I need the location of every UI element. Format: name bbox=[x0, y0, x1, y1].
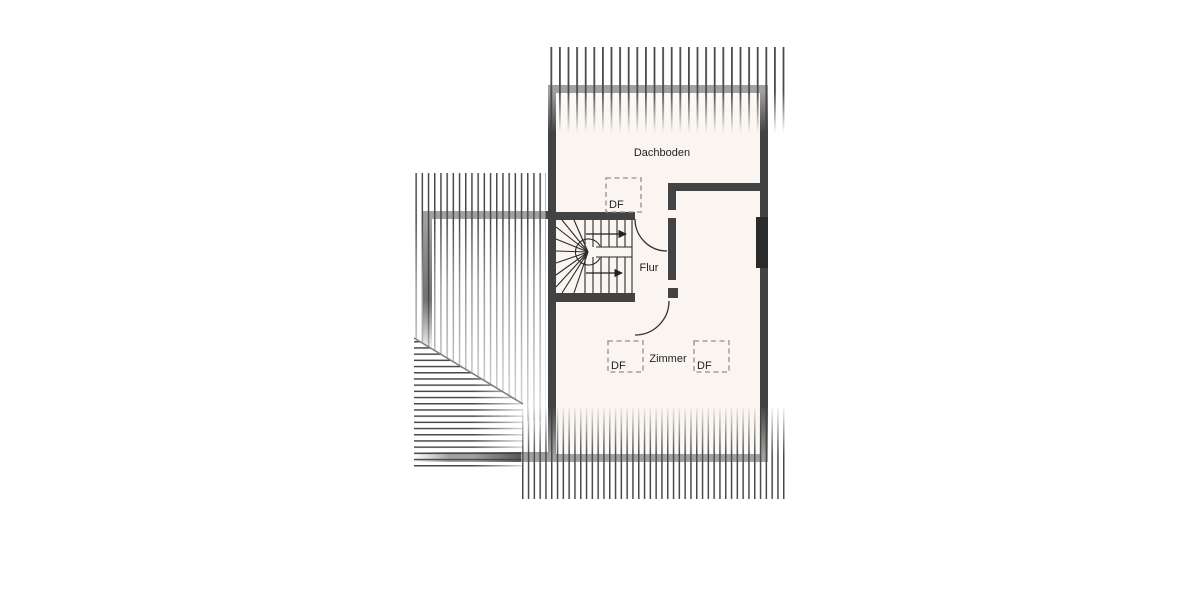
roof-window-label: DF bbox=[697, 360, 712, 372]
stair-bottom-wall bbox=[552, 293, 635, 302]
roof-window-label: DF bbox=[611, 360, 626, 372]
stair-top-wall bbox=[552, 212, 635, 220]
chimney-block bbox=[756, 217, 768, 268]
room-label-hallway: Flur bbox=[640, 262, 659, 274]
hallway-wall-stub bbox=[668, 288, 678, 298]
room-partition-wall bbox=[672, 183, 768, 191]
room-label-attic: Dachboden bbox=[634, 147, 690, 159]
hallway-right-wall-lower bbox=[668, 218, 676, 280]
roof-hatch-top bbox=[545, 47, 786, 133]
floor-plan-canvas: DF DF DF Dachboden Flur Zimmer bbox=[0, 0, 1200, 600]
room-label-room: Zimmer bbox=[649, 353, 687, 365]
roof-hatch-bottom bbox=[521, 408, 786, 499]
roof-window-label: DF bbox=[609, 199, 624, 211]
attic-floor-plan: DF DF DF Dachboden Flur Zimmer bbox=[0, 0, 1200, 600]
